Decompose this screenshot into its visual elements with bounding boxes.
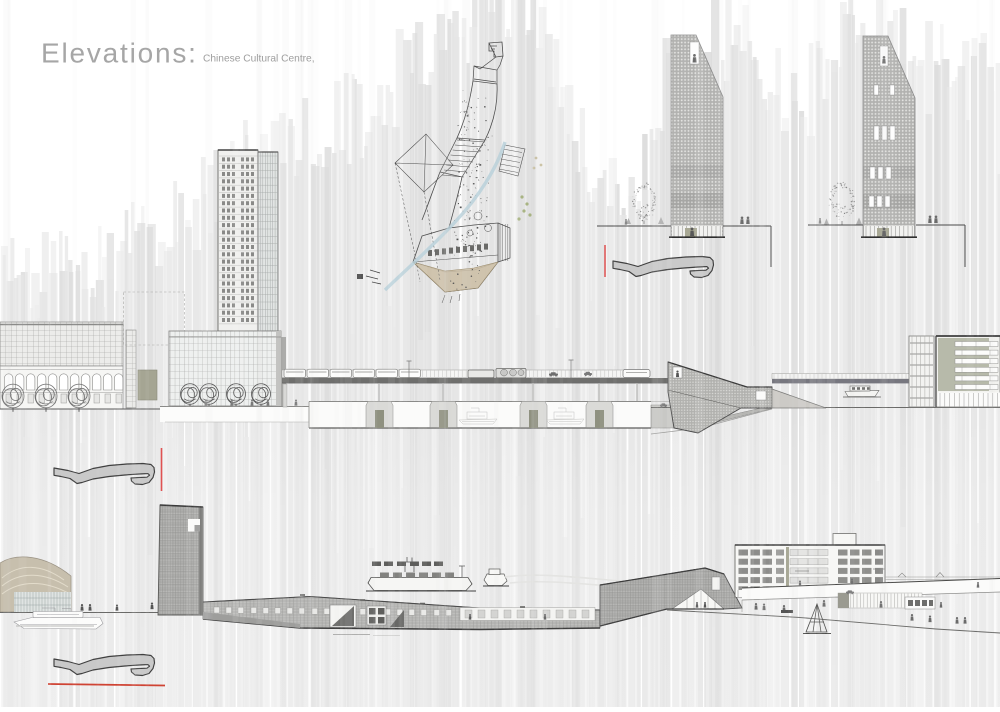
svg-text:Chinese Cultural Centre,: Chinese Cultural Centre,: [203, 54, 315, 65]
svg-text:Elevations:: Elevations:: [41, 38, 198, 69]
